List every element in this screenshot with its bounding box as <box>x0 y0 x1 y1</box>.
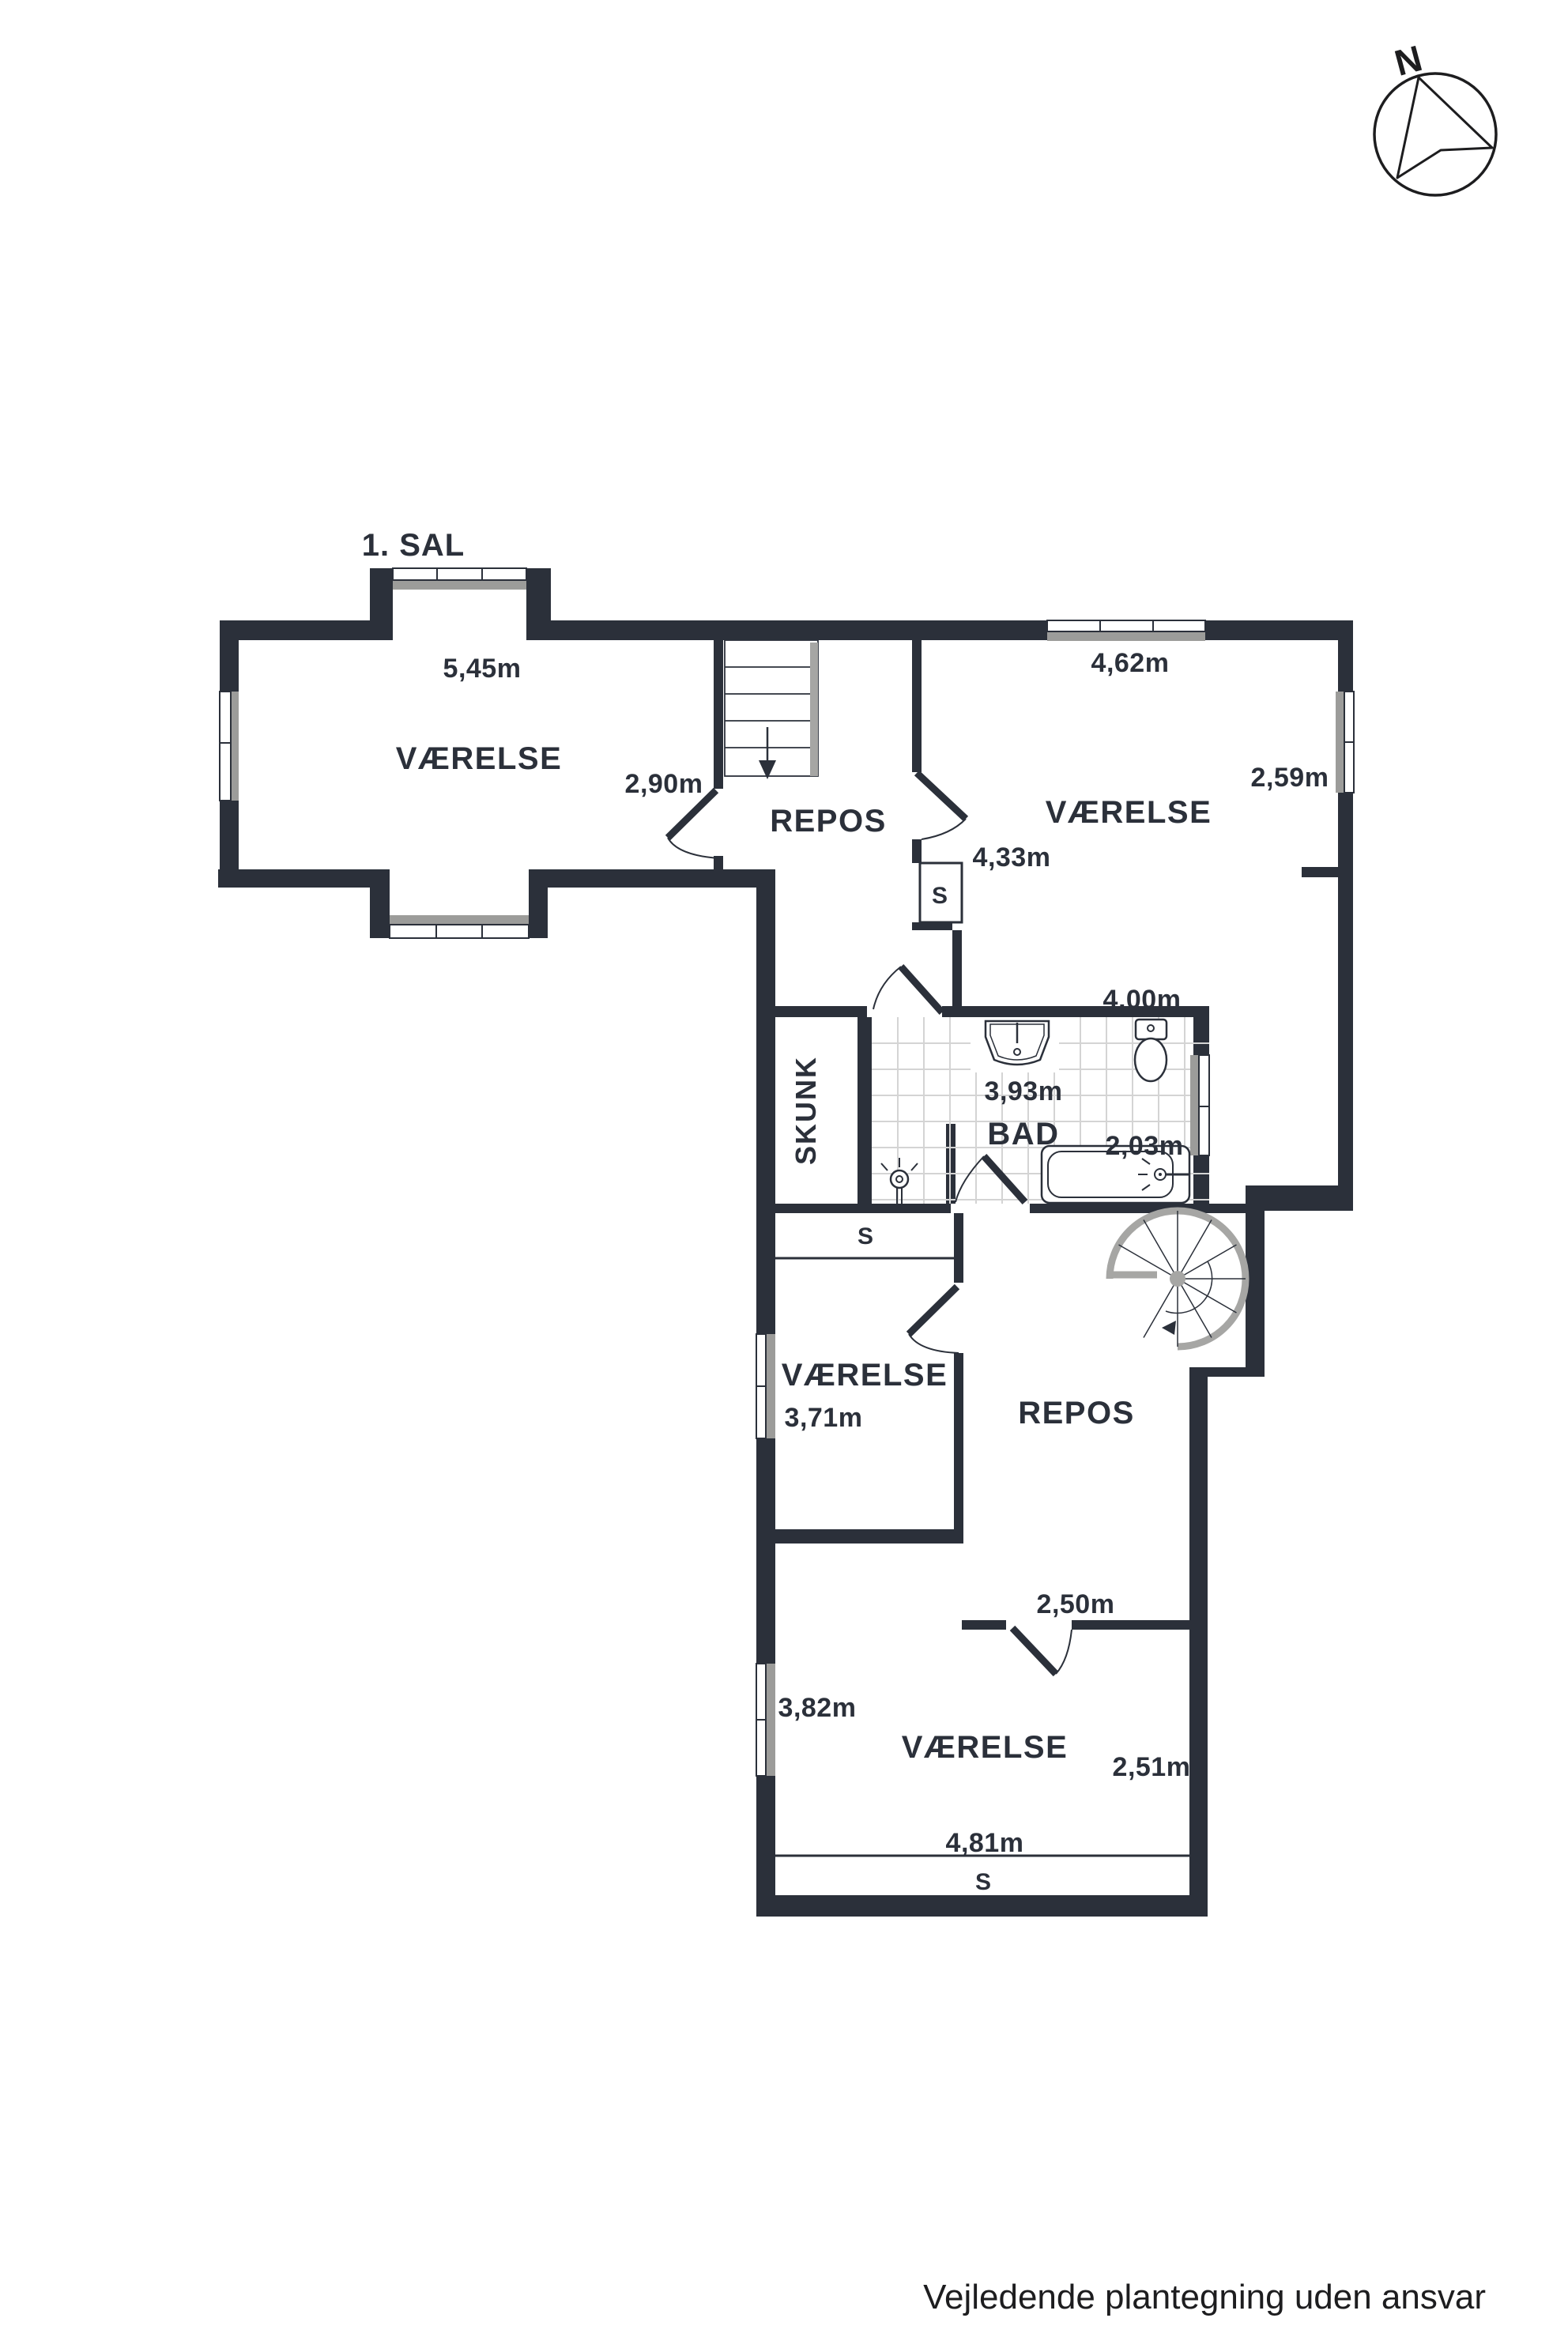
dim-repos-door: 2,50m <box>1037 1589 1115 1619</box>
room-label-south: VÆRELSE <box>902 1730 1069 1765</box>
dim-ne-width: 4,62m <box>1091 648 1170 678</box>
dim-bad-width: 3,93m <box>985 1076 1063 1106</box>
bathroom-fixtures <box>881 1017 1189 1204</box>
room-label-skunk: SKUNK <box>790 1056 822 1165</box>
dim-ne-height: 2,59m <box>1251 763 1329 793</box>
disclaimer-text: Vejledende plantegning uden ansvar <box>923 2278 1486 2316</box>
floor-plan-page: N 1. SAL 5,45m VÆRELSE 2,90m REPOS 4,62m… <box>0 0 1568 2352</box>
closet-label-skunk: S <box>857 1223 873 1249</box>
floor-title: 1. SAL <box>362 528 465 563</box>
room-label-mid: VÆRELSE <box>782 1358 948 1393</box>
compass-north-label: N <box>1390 37 1427 84</box>
dim-ne-bottom: 4,33m <box>973 842 1051 873</box>
staircase-spiral <box>1110 1211 1246 1347</box>
room-label-nw: VÆRELSE <box>396 741 563 776</box>
room-label-repos-top: REPOS <box>770 804 887 839</box>
door-mid-room <box>909 1287 959 1353</box>
closet-label-south: S <box>975 1869 991 1895</box>
closet-label-ne: S <box>932 883 948 909</box>
toilet-icon <box>1135 1020 1167 1081</box>
staircase-straight <box>725 640 818 779</box>
door-bad-top <box>873 967 942 1012</box>
door-ne-room <box>917 773 966 839</box>
dim-nw-door: 2,90m <box>625 769 703 799</box>
room-label-repos-mid: REPOS <box>1018 1396 1135 1430</box>
door-south-room <box>1012 1628 1072 1674</box>
dim-bad-top: 4,00m <box>1103 985 1182 1015</box>
dim-bad-height: 2,03m <box>1106 1131 1184 1161</box>
dim-mid-width: 3,71m <box>785 1403 863 1433</box>
room-label-bad: BAD <box>987 1117 1059 1151</box>
room-label-ne: VÆRELSE <box>1046 795 1212 830</box>
spiral-direction-arrow <box>1162 1321 1176 1335</box>
dim-south-right: 2,51m <box>1113 1752 1191 1782</box>
dim-south-left: 3,82m <box>778 1693 857 1723</box>
compass: N <box>1374 37 1496 195</box>
door-nw-room <box>668 790 718 858</box>
sink-icon <box>986 1021 1049 1065</box>
door-bad-bottom <box>955 1156 1025 1202</box>
dim-nw-width: 5,45m <box>443 654 522 684</box>
ceiling-light-icon <box>881 1158 918 1204</box>
dim-south-width: 4,81m <box>946 1828 1024 1858</box>
